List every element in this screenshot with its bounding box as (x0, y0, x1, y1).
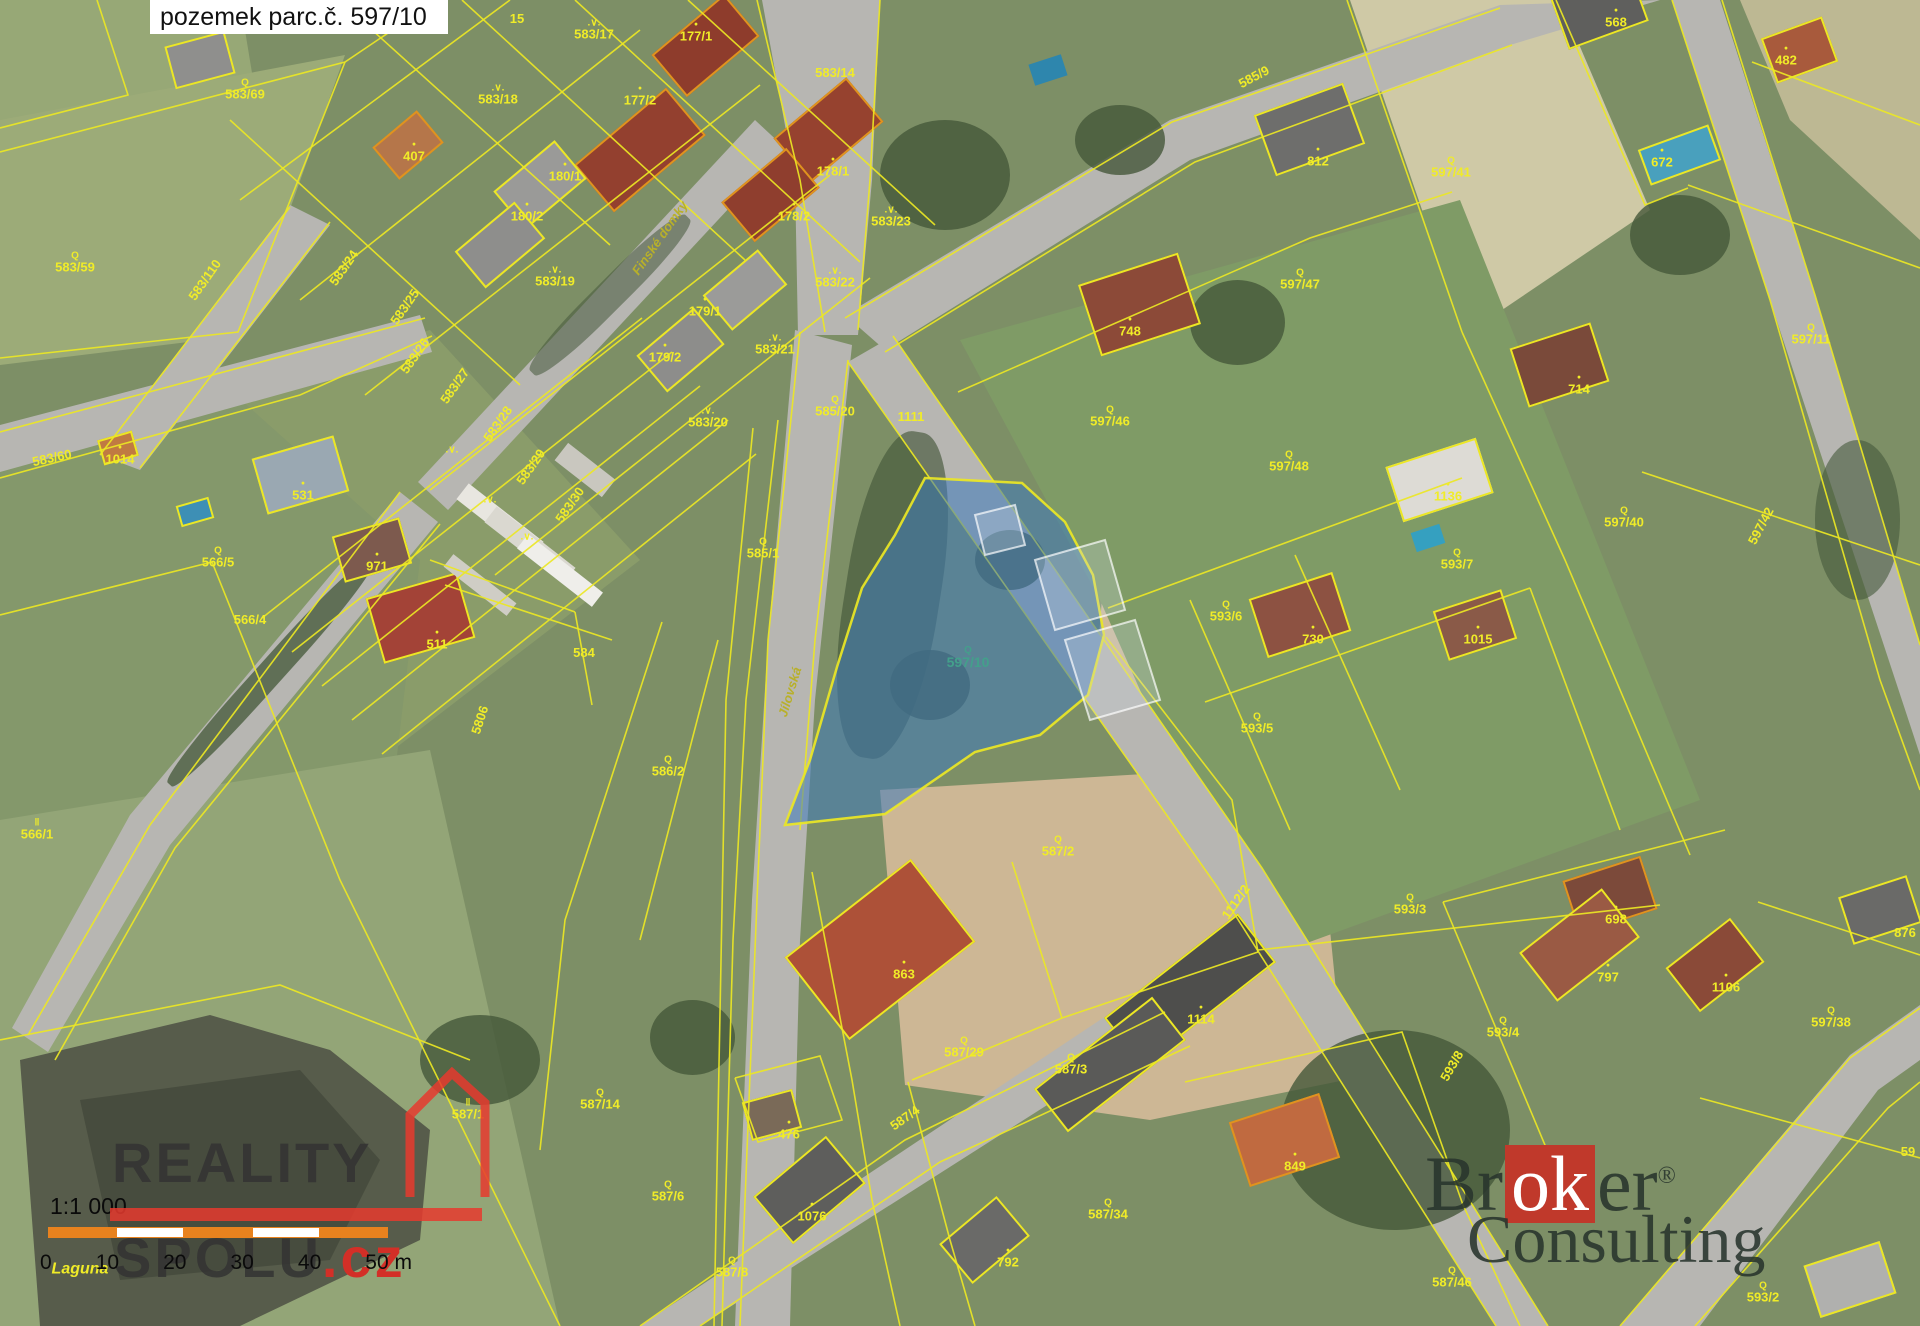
parcel-label: ‖566/1 (21, 819, 54, 842)
label-text: 587/29 (944, 1046, 984, 1060)
label-text: 585/20 (815, 405, 855, 419)
scale-tick: 50 m (365, 1251, 412, 1275)
label-text: 597/48 (1269, 460, 1309, 474)
label-text: 583/25 (388, 287, 422, 327)
parcel-label: •568 (1605, 7, 1627, 30)
label-text: 597/10 (947, 655, 990, 670)
registered-mark: ® (1658, 1163, 1676, 1189)
parcel-label: •407 (403, 141, 425, 164)
parcel-label: .∨. (446, 446, 459, 455)
label-text: 1076 (798, 1210, 827, 1224)
label-text: 593/5 (1241, 722, 1274, 736)
parcel-label: 583/60 (31, 447, 73, 469)
label-text: 797 (1597, 971, 1619, 985)
parcel-label: Q597/11 (1791, 324, 1830, 347)
parcel-label: Q583/59 (55, 252, 95, 275)
parcel-label: Q585/20 (815, 396, 855, 419)
label-text: 583/21 (755, 343, 795, 357)
label-text: 482 (1775, 54, 1797, 68)
parcel-label: Q593/4 (1487, 1017, 1520, 1040)
label-text: 180/1 (549, 170, 582, 184)
label-text: 587/6 (652, 1190, 685, 1204)
parcel-label: •476 (778, 1119, 800, 1142)
scale-tick: 40 (298, 1251, 321, 1275)
label-text: 177/1 (680, 30, 713, 44)
parcel-label: 876 (1894, 926, 1916, 940)
scale-tick: 30 (231, 1251, 254, 1275)
parcel-label: .∨.583/20 (688, 407, 728, 430)
parcel-label: .∨.583/19 (535, 266, 575, 289)
label-text: 568 (1605, 16, 1627, 30)
scale-segment (252, 1227, 320, 1238)
parcel-label: 584 (573, 646, 595, 660)
parcel-label: Q587/8 (716, 1257, 749, 1280)
label-text: 531 (292, 489, 314, 503)
label-text: 407 (403, 150, 425, 164)
label-text: 1114 (1187, 1013, 1215, 1027)
label-text: 583/20 (688, 416, 728, 430)
label-text: 583/14 (815, 66, 855, 80)
label-text: 583/27 (438, 366, 472, 406)
parcel-label: 15 (510, 12, 524, 26)
parcel-label: 583/27 (438, 366, 472, 406)
label-text: 597/11 (1791, 333, 1830, 347)
label-text: 593/6 (1210, 610, 1243, 624)
label-text: 597/41 (1431, 166, 1471, 180)
label-text: 593/3 (1394, 903, 1427, 917)
parcel-label: .∨. (521, 533, 534, 542)
parcel-label: 566/4 (234, 613, 267, 627)
label-text: 1112/2 (1219, 882, 1252, 921)
label-text: Jílovská (776, 665, 804, 718)
label-text: 593/4 (1487, 1026, 1520, 1040)
parcel-label: .∨. (484, 496, 497, 505)
label-text: 1106 (1712, 981, 1740, 995)
label-text: 597/40 (1604, 516, 1644, 530)
parcel-label: .∨.583/23 (871, 206, 911, 229)
scale-segment (116, 1227, 184, 1238)
label-text: 583/24 (327, 248, 361, 288)
parcel-label: •849 (1284, 1151, 1306, 1174)
map-title-text: pozemek parc.č. 597/10 (160, 3, 427, 31)
label-text: 672 (1651, 156, 1673, 170)
map-title: pozemek parc.č. 597/10 (150, 0, 448, 34)
label-text: 586/2 (652, 765, 685, 779)
label-text: 863 (893, 968, 915, 982)
parcel-label: 5806 (469, 704, 491, 736)
street-label: Jílovská (776, 665, 804, 718)
parcel-label: •531 (292, 480, 314, 503)
scale-segment (48, 1227, 116, 1238)
label-text: 1015 (1464, 633, 1493, 647)
label-text: 792 (997, 1256, 1019, 1270)
parcel-label: •714 (1568, 374, 1590, 397)
parcel-label: •698 (1605, 904, 1627, 927)
parcel-label: 583/110 (186, 257, 224, 303)
parcel-label: .∨.583/17 (574, 19, 614, 42)
label-text: 597/46 (1090, 415, 1130, 429)
label-text: 584 (573, 646, 595, 660)
logo-word-reality: REALITY (112, 1130, 373, 1195)
parcel-label: .∨.583/22 (815, 267, 855, 290)
label-text: 1014 (106, 453, 135, 467)
label-text: 593/7 (1441, 558, 1474, 572)
label-text: 583/110 (186, 257, 224, 303)
parcel-label: Q593/5 (1241, 713, 1274, 736)
parcel-label: Q597/46 (1090, 406, 1130, 429)
parcel-label: •797 (1597, 962, 1619, 985)
parcel-label: Q593/7 (1441, 549, 1474, 572)
parcel-label: Q587/14 (580, 1089, 620, 1112)
label-text: 587/4 (888, 1103, 922, 1133)
parcel-label: 1111 (898, 410, 925, 424)
label-text: 15 (510, 12, 524, 26)
parcel-label: •1014 (106, 444, 135, 467)
parcel-label: •178/2 (778, 201, 811, 224)
label-text: 583/60 (31, 447, 73, 469)
label-text: 849 (1284, 1160, 1306, 1174)
parcel-label: •730 (1302, 624, 1324, 647)
parcel-label: •1106 (1712, 972, 1740, 995)
label-text: 177/2 (624, 94, 657, 108)
parcel-label: 583/24 (327, 248, 361, 288)
parcel-label: •863 (893, 959, 915, 982)
label-text: 583/19 (535, 275, 575, 289)
parcel-label: Q587/3 (1055, 1054, 1088, 1077)
label-text: 585/1 (747, 547, 780, 561)
parcel-label: •672 (1651, 147, 1673, 170)
label-text: 587/3 (1055, 1063, 1088, 1077)
v-land-use-symbol: .∨. (484, 496, 497, 505)
label-text: 698 (1605, 913, 1627, 927)
parcel-label: 583/30 (553, 485, 587, 525)
parcel-label: •482 (1775, 45, 1797, 68)
scale-tick: 20 (163, 1251, 186, 1275)
parcel-label: Q597/48 (1269, 451, 1309, 474)
parcel-label: •1076 (798, 1201, 827, 1224)
parcel-label: Q597/38 (1811, 1007, 1851, 1030)
label-text: 585/9 (1236, 63, 1271, 90)
parcel-label: Q597/40 (1604, 507, 1644, 530)
parcel-label: 583/29 (514, 447, 548, 487)
parcel-label: •971 (366, 551, 388, 574)
parcel-label: Q593/3 (1394, 894, 1427, 917)
parcel-label: 583/26 (398, 336, 432, 376)
parcel-label: Q597/47 (1280, 269, 1320, 292)
logo-house-outline-icon (395, 1067, 515, 1247)
label-text: 597/38 (1811, 1016, 1851, 1030)
label-text: 511 (427, 638, 448, 652)
parcel-label: •177/1 (680, 21, 713, 44)
label-text: 971 (366, 560, 388, 574)
label-text: 59 (1901, 1145, 1915, 1159)
scale-segment (320, 1227, 388, 1238)
parcel-label: Q587/29 (944, 1037, 984, 1060)
label-text: 583/30 (553, 485, 587, 525)
label-text: 180/2 (511, 210, 544, 224)
parcel-label: 59 (1901, 1145, 1915, 1159)
label-text: 1111 (898, 410, 925, 424)
label-text: 179/1 (689, 305, 722, 319)
scale-segment (184, 1227, 252, 1238)
parcel-label: Q597/41 (1431, 157, 1471, 180)
scale-tick: 10 (96, 1251, 119, 1275)
parcel-label: 585/9 (1236, 63, 1271, 90)
parcel-label: .∨.583/18 (478, 84, 518, 107)
parcel-label: Q587/6 (652, 1181, 685, 1204)
parcel-label: Q597/10 (947, 646, 990, 670)
label-text: 597/42 (1746, 505, 1777, 547)
label-text: Finské domky (630, 199, 691, 278)
label-text: 593/8 (1438, 1048, 1466, 1083)
parcel-label: •178/1 (817, 156, 850, 179)
label-text: 748 (1119, 325, 1141, 339)
v-land-use-symbol: .∨. (446, 446, 459, 455)
parcel-label: Q586/2 (652, 756, 685, 779)
label-text: 583/28 (481, 404, 515, 444)
parcel-label: •1136 (1434, 481, 1462, 504)
parcel-label: Q585/1 (747, 538, 780, 561)
label-text: 714 (1568, 383, 1590, 397)
parcel-label: 583/25 (388, 287, 422, 327)
parcel-label: •812 (1307, 146, 1329, 169)
parcel-label: .∨.583/21 (755, 334, 795, 357)
reality-spolu-watermark: 1:1 000 REALITY SPOLU.cz 01020304050 m (40, 1075, 510, 1325)
label-text: 5806 (469, 704, 491, 736)
parcel-label: •511 (427, 629, 448, 652)
broker-consulting-watermark: Broker® Consulting (1425, 1145, 1895, 1325)
label-text: 583/26 (398, 336, 432, 376)
parcel-label: 587/4 (888, 1103, 922, 1133)
label-text: 566/5 (202, 556, 235, 570)
label-text: 566/4 (234, 613, 267, 627)
label-text: 178/2 (778, 210, 811, 224)
label-text: 179/2 (649, 351, 682, 365)
parcel-label: Q587/34 (1088, 1199, 1128, 1222)
scale-tick: 0 (40, 1251, 52, 1275)
parcel-label: •180/2 (511, 201, 544, 224)
label-text: 587/8 (716, 1266, 749, 1280)
label-text: 730 (1302, 633, 1324, 647)
parcel-label: •1015 (1464, 624, 1493, 647)
label-text: 583/29 (514, 447, 548, 487)
parcel-label: •748 (1119, 316, 1141, 339)
label-text: 583/23 (871, 215, 911, 229)
parcel-label: Q566/5 (202, 547, 235, 570)
parcel-label: 597/42 (1746, 505, 1777, 547)
label-text: 178/1 (817, 165, 850, 179)
scale-tick-labels: 01020304050 m (40, 1251, 412, 1275)
label-text: 597/47 (1280, 278, 1320, 292)
parcel-label: Q583/69 (225, 79, 265, 102)
parcel-label: •792 (997, 1247, 1019, 1270)
label-text: 583/69 (225, 88, 265, 102)
label-text: 1136 (1434, 490, 1462, 504)
parcel-label: 583/14 (815, 66, 855, 80)
label-text: 587/2 (1042, 845, 1075, 859)
parcel-label: •1114 (1187, 1004, 1215, 1027)
parcel-label: 583/28 (481, 404, 515, 444)
label-text: 476 (778, 1128, 800, 1142)
label-text: 566/1 (21, 828, 54, 842)
label-text: 587/34 (1088, 1208, 1128, 1222)
v-land-use-symbol: .∨. (521, 533, 534, 542)
parcel-label: •179/1 (689, 296, 722, 319)
scale-bar (48, 1227, 388, 1238)
broker-logo-line2: Consulting (1467, 1205, 1895, 1273)
parcel-label: 593/8 (1438, 1048, 1466, 1083)
label-text: 583/17 (574, 28, 614, 42)
parcel-label: Q593/6 (1210, 601, 1243, 624)
label-text: 587/14 (580, 1098, 620, 1112)
label-text: 876 (1894, 926, 1916, 940)
parcel-label: •177/2 (624, 85, 657, 108)
parcel-label: •180/1 (549, 161, 582, 184)
street-label: Finské domky (630, 199, 691, 278)
parcel-label: 1112/2 (1219, 882, 1252, 921)
parcel-label: Q587/2 (1042, 836, 1075, 859)
cadastral-map-screenshot: Q583/69Q583/59583/110•407583/24583/25583… (0, 0, 1920, 1326)
label-text: 583/18 (478, 93, 518, 107)
label-text: 583/22 (815, 276, 855, 290)
parcel-label: •179/2 (649, 342, 682, 365)
label-text: 812 (1307, 155, 1329, 169)
label-text: 583/59 (55, 261, 95, 275)
